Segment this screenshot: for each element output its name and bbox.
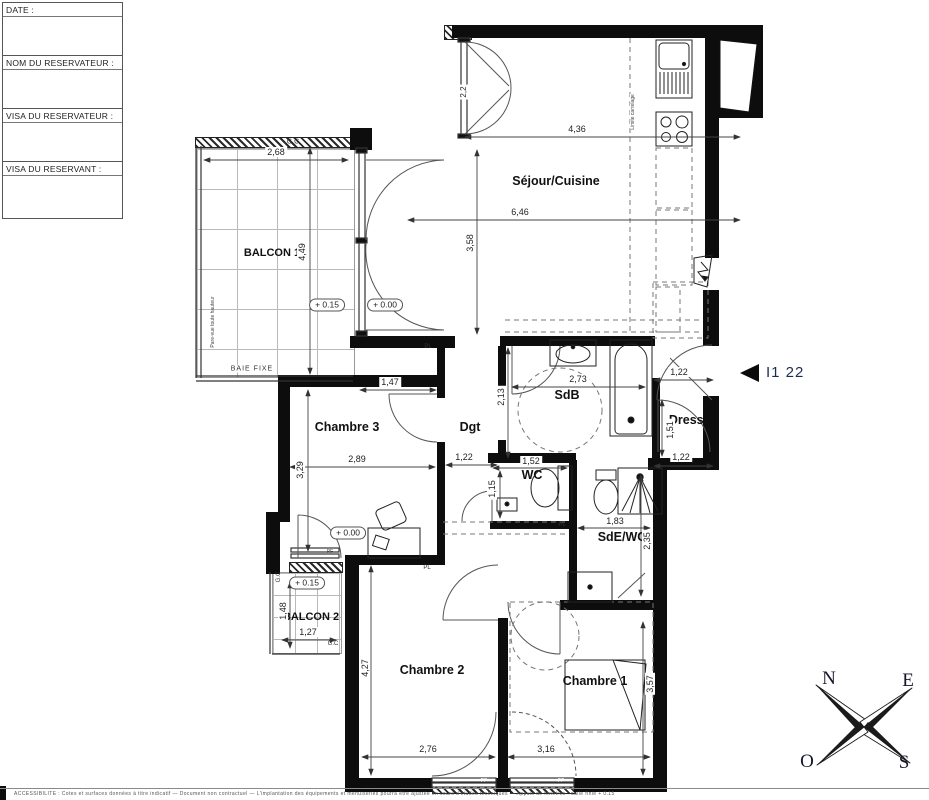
dim-sdb-height: 2,13 [496, 386, 506, 408]
level-hall: + 0.00 [330, 527, 366, 540]
note-pf-ch2: PF [481, 778, 487, 784]
note-pl-hall: PL [424, 344, 431, 350]
dim-ch3-width: 2,89 [346, 454, 368, 464]
note-limite-carrelage: Limite carrelage [630, 94, 636, 130]
note-pare-vue: Pare-vue toute hauteur [210, 296, 216, 347]
dim-wc-height: 1,15 [487, 478, 497, 500]
unit-id-label: I1 22 [766, 364, 804, 381]
room-label-balcon2: BALCON 2 [283, 611, 339, 623]
bed-and-wardrobe [565, 660, 646, 730]
dim-balcon2-height: 1,48 [278, 600, 288, 622]
note-gc-balcon2-left: G.C [276, 572, 282, 583]
dim-ch1-height: 3,57 [645, 673, 655, 695]
dim-sdb-width: 2,73 [567, 374, 589, 384]
kitchen-hob [656, 112, 692, 146]
entry-direction-icon [740, 364, 759, 382]
note-gc-balcon2-bottom: G.C [328, 641, 339, 647]
floor-plan-canvas [0, 0, 929, 800]
dim-sejour-width-2: 6,46 [509, 207, 531, 217]
room-label-chambre3: Chambre 3 [315, 420, 380, 434]
dim-balcon1-height: 4,49 [297, 241, 307, 263]
dim-ch3-door: 1,47 [379, 377, 401, 387]
room-label-sde: SdE/WC [598, 530, 647, 544]
room-label-dgt: Dgt [460, 420, 481, 434]
compass-west: O [800, 751, 814, 773]
room-label-balcon1: BALCON 1 [244, 247, 300, 259]
dim-balcon2-width: 1,27 [297, 627, 319, 637]
footer-note: ACCESSIBILITE : Cotes et surfaces donnée… [14, 791, 919, 800]
glazing [196, 38, 574, 787]
level-sejour: + 0.00 [367, 299, 403, 312]
dim-dress-width-top: 1,22 [668, 367, 690, 377]
dim-ch2-width: 2,76 [417, 744, 439, 754]
dim-dress-height: 1,51 [665, 419, 675, 441]
footer-divider [0, 788, 929, 789]
dim-sejour-height: 3,58 [465, 232, 475, 254]
room-label-wc: WC [522, 468, 543, 482]
note-pl-corridor: PL [558, 522, 565, 528]
note-baie-fixe: BAIE FIXE [231, 366, 273, 373]
dim-dress-width-bottom: 1,22 [670, 452, 692, 462]
dim-ch1-width: 3,16 [535, 744, 557, 754]
note-gc-balcon1: G.C [287, 139, 299, 146]
dim-dgt-width: 1,22 [453, 452, 475, 462]
note-pf-balcon2: PF [327, 549, 333, 555]
dim-sde-height: 2,35 [642, 530, 652, 552]
dim-wc-width: 1,52 [520, 456, 542, 466]
compass-north: N [822, 668, 836, 690]
room-label-chambre1: Chambre 1 [563, 674, 628, 688]
dim-ch2-height: 4,27 [360, 657, 370, 679]
kitchen-sink [656, 40, 692, 98]
note-pf-ch1: PF [558, 778, 564, 784]
room-label-sdb: SdB [555, 388, 580, 402]
note-pl-ch2: PL [423, 565, 430, 571]
room-label-chambre2: Chambre 2 [400, 663, 465, 677]
sde-toilet [594, 470, 618, 514]
dim-sejour-width-1: 4,36 [566, 124, 588, 134]
compass-south: S [899, 752, 910, 774]
level-balcon1: + 0.15 [309, 299, 345, 312]
dim-sejour-door: 2,2 [459, 84, 469, 99]
dim-ch3-height: 3,29 [295, 459, 305, 481]
desk-and-chair [368, 501, 420, 558]
compass-east: E [902, 670, 914, 692]
dim-sde-width: 1,83 [604, 516, 626, 526]
room-label-sejour: Séjour/Cuisine [512, 174, 600, 188]
level-balcon2: + 0.15 [289, 577, 325, 590]
bathtub [610, 340, 652, 436]
floor-plan-page: DATE : NOM DU RESERVATEUR : VISA DU RESE… [0, 0, 929, 800]
dim-balcon1-width: 2,68 [265, 147, 287, 157]
dashed-guides [443, 38, 708, 732]
compass-rose [816, 685, 912, 765]
